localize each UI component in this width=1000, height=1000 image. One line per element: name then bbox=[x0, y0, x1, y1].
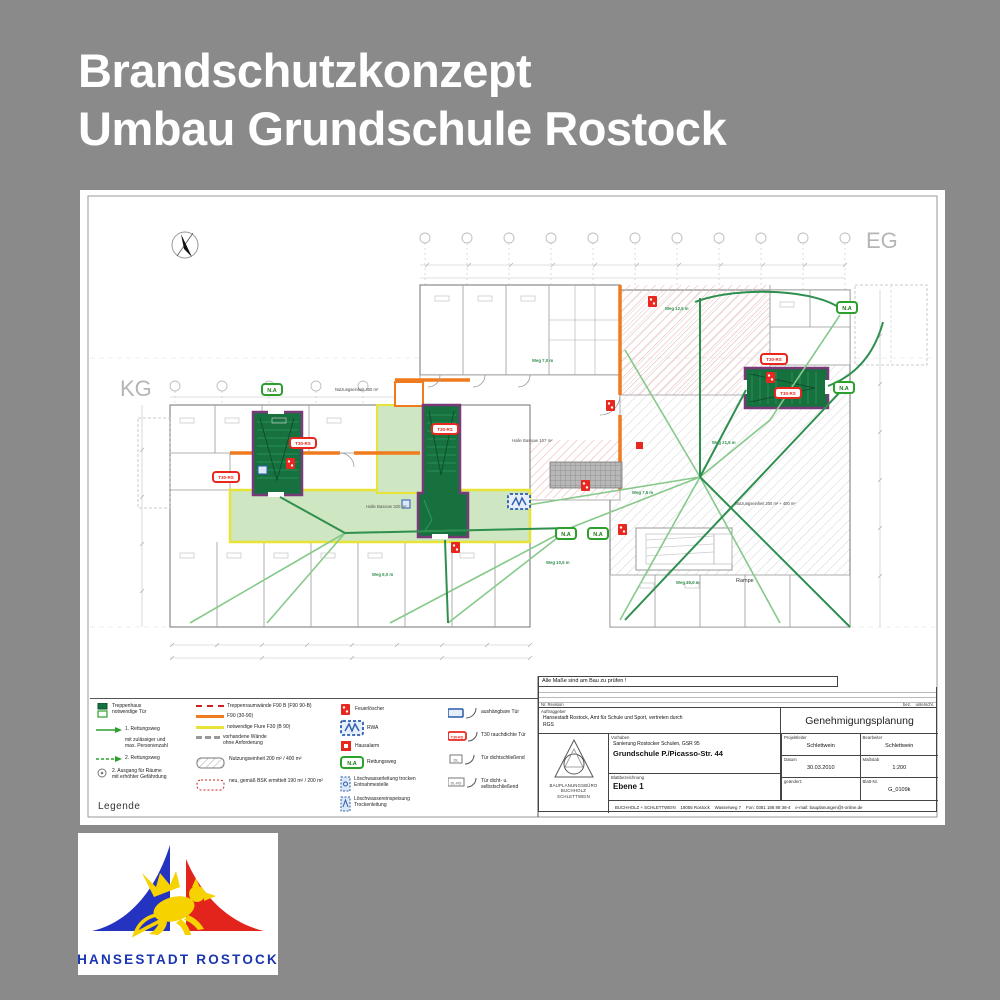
page-title: Brandschutzkonzept Umbau Grundschule Ros… bbox=[78, 42, 726, 158]
hansestadt-rostock-logo: HANSESTADT ROSTOCK bbox=[78, 833, 278, 975]
legend-label: mit zulässiger und bbox=[125, 737, 165, 743]
tight-door-icon: DL bbox=[448, 751, 478, 766]
fire-extinguisher-icon bbox=[340, 703, 352, 716]
bearbeiter-cell: BearbeiterSchlettwein bbox=[860, 734, 939, 756]
route2-arrow-icon bbox=[96, 755, 122, 763]
legend-label: neu, gemäß BSK ermittelt 190 m² / 200 m² bbox=[229, 778, 323, 784]
t30-badge-label: T30-RS bbox=[218, 475, 234, 480]
route-label: Weg 9,0 m bbox=[372, 572, 393, 577]
legend-label: aushängbare Tür bbox=[481, 709, 519, 715]
dry-riser-feed-icon bbox=[340, 796, 351, 812]
legend-label: Treppenhaus bbox=[112, 703, 141, 709]
page-title-line1: Brandschutzkonzept bbox=[78, 42, 726, 100]
wall-existing-swatch bbox=[196, 736, 220, 739]
t30-door-label: T30-RS bbox=[451, 735, 464, 739]
pl-label: Projektleiter bbox=[782, 734, 860, 740]
self-closing-door-icon: DL-RS bbox=[448, 774, 478, 789]
legend-label: Hausalarm bbox=[355, 743, 379, 749]
route-label: Weg 30,0 m bbox=[676, 580, 700, 585]
sheet-name: Ebene 1 bbox=[609, 780, 780, 791]
route-label: Weg 10,5 m bbox=[546, 560, 570, 565]
page-title-line2: Umbau Grundschule Rostock bbox=[78, 100, 726, 158]
meta-grid: ProjektleiterSchlettwein BearbeiterSchle… bbox=[781, 734, 938, 800]
legend-label: Feuerlöscher bbox=[355, 706, 384, 712]
removable-door-icon bbox=[448, 705, 478, 720]
project-line2: Grundschule P./Picasso-Str. 44 bbox=[609, 747, 780, 758]
legend-label: Nutzungseinheit 200 m² / 400 m² bbox=[229, 756, 302, 762]
wall-f90b-swatch bbox=[196, 705, 224, 707]
geaendert-label: geändert: bbox=[782, 778, 860, 784]
sheet-name-cell: Blattbezeichnung Ebene 1 bbox=[609, 774, 780, 800]
geaendert-cell: geändert: bbox=[781, 778, 860, 800]
client-line2: RGS bbox=[543, 722, 554, 728]
blattnr-label: Blatt-Nr. bbox=[861, 778, 939, 784]
bearbeiter-label: Bearbeiter bbox=[861, 734, 939, 740]
ramp bbox=[636, 528, 732, 570]
legend-col-doors: aushängbare Tür T30-RS T30 rauchdichte T… bbox=[448, 699, 538, 791]
logo-caption: HANSESTADT ROSTOCK bbox=[78, 952, 278, 967]
ramp-label: Rampe bbox=[736, 578, 754, 584]
architect-logo-icon bbox=[552, 737, 596, 781]
pl-value: Schlettwein bbox=[782, 743, 860, 749]
route-label: Weg 21,5 m bbox=[712, 440, 736, 445]
title-block: Alle Maße sind am Bau zu prüfen ! Nr. Re… bbox=[538, 676, 937, 812]
exit-room-icon bbox=[96, 768, 109, 778]
legend-label: RWA bbox=[367, 725, 378, 731]
north-arrow-icon bbox=[172, 232, 198, 258]
legend-label: notwendige Tür bbox=[112, 709, 146, 715]
wall-flur-swatch bbox=[196, 726, 224, 729]
contact-line: BUCHHOLZ + SCHLETTWEIN 18055 Rostock Was… bbox=[609, 800, 938, 813]
legend-label: 1. Rettungsweg bbox=[125, 726, 160, 732]
measure-note: Alle Maße sind am Bau zu prüfen ! bbox=[538, 676, 838, 687]
title-block-main: Auftraggeber Hansestadt Rostock, Amt für… bbox=[538, 707, 937, 812]
datum-label: Datum bbox=[782, 756, 860, 762]
usage-unit-label-1: Nutzungseinheit 200 m² + 400 m² bbox=[735, 501, 796, 506]
t30-badge-label: T30-RS bbox=[766, 357, 782, 362]
route-label: Weg 12,5 m bbox=[665, 306, 689, 311]
t30-badge-label: T30-RS bbox=[780, 391, 796, 396]
legend-col-equipment: Feuerlöscher RWA Hausalarm N.A Rettungsw… bbox=[340, 699, 445, 812]
firm-line: BUCHHOLZ bbox=[561, 788, 586, 793]
legend-label: Tür dicht- u. selbstschließend bbox=[481, 778, 538, 791]
rwa-icon bbox=[340, 720, 364, 736]
blattnr-cell: Blatt-Nr.G_0109k bbox=[860, 778, 939, 800]
architect-logo-cell: BAUPLANUNGSBÜRO BUCHHOLZ SCHLETTWEIN bbox=[539, 734, 609, 813]
legend-heading: Legende bbox=[98, 801, 140, 812]
legend-label: Treppenraumwände F90 B (F90 90-B) bbox=[227, 703, 312, 709]
floor-label-eg: EG bbox=[866, 228, 898, 253]
blattnr-value: G_0109k bbox=[861, 787, 939, 793]
house-alarm-icon bbox=[636, 442, 643, 449]
route-label: Weg 7,0 m bbox=[532, 358, 553, 363]
legend-label: 2. Rettungsweg bbox=[125, 755, 160, 761]
legend-label: 2. Ausgang für Räume bbox=[112, 768, 162, 774]
dl-door-label: DL bbox=[453, 757, 459, 762]
na-badge-label: N.A bbox=[267, 388, 277, 394]
na-badge-label: N.A bbox=[842, 306, 852, 312]
legend-label: Tür dichtschließend bbox=[481, 755, 525, 761]
client-line1: Hansestadt Rostock, Amt für Schule und S… bbox=[543, 715, 683, 721]
rwa-icon bbox=[508, 494, 530, 509]
t30-door-icon: T30-RS bbox=[448, 728, 478, 743]
datum-value: 30.03.2010 bbox=[782, 765, 860, 771]
t30-badge-label: T30-RS bbox=[295, 441, 311, 446]
legend-label: ohne Anforderung bbox=[223, 740, 263, 746]
legend-label: Löschwasserleitung trocken bbox=[354, 776, 416, 782]
escape-badge-icon: N.A bbox=[340, 756, 364, 769]
firm-line: BAUPLANUNGSBÜRO bbox=[550, 783, 598, 788]
massstab-label: Maßstab bbox=[861, 756, 939, 762]
legend: Treppenhaus notwendige Tür 1. Rettungswe… bbox=[90, 698, 538, 818]
na-badge-label: N.A bbox=[561, 532, 571, 538]
legend-col-escape: Treppenhaus notwendige Tür 1. Rettungswe… bbox=[96, 699, 194, 780]
stairwell-a bbox=[253, 409, 302, 497]
legend-label: Entnahmestelle bbox=[354, 782, 388, 788]
floor-label-kg: KG bbox=[120, 376, 152, 401]
massstab-value: 1:200 bbox=[861, 765, 939, 771]
pl-cell: ProjektleiterSchlettwein bbox=[781, 734, 860, 756]
usage-unit-new-icon bbox=[196, 778, 226, 792]
dlrs-door-label: DL-RS bbox=[451, 781, 462, 785]
na-badge-label: N.A bbox=[593, 532, 603, 538]
project-cells: Vorhaben Sanierung Rostocker Schulen, GS… bbox=[609, 734, 781, 800]
massstab-cell: Maßstab1:200 bbox=[860, 756, 939, 778]
legend-label: F90 (30-90) bbox=[227, 713, 253, 719]
legend-label: Löschwassereinspeisung bbox=[354, 796, 410, 802]
legend-label: mit erhöhter Gefährdung bbox=[112, 774, 166, 780]
hall-big-label: Halle Bassow 320 m² bbox=[366, 504, 407, 509]
hansestadt-rostock-logo-icon: HANSESTADT ROSTOCK bbox=[78, 833, 278, 975]
revision-table: Nr. Revision bez. unterschr. bbox=[538, 687, 937, 707]
client-cell: Auftraggeber Hansestadt Rostock, Amt für… bbox=[539, 708, 781, 734]
legend-label: vorhandene Wände bbox=[223, 734, 267, 740]
wall-f90-swatch bbox=[196, 715, 224, 718]
dry-riser-outlet-icon bbox=[340, 776, 351, 792]
legend-label: Trockenleitung bbox=[354, 802, 387, 808]
project-cell: Vorhaben Sanierung Rostocker Schulen, GS… bbox=[609, 734, 780, 774]
house-alarm-icon bbox=[340, 740, 352, 752]
plan-sheet: N.A N.A N.A N.A N.A T30-RS T30-RS T30-RS… bbox=[80, 190, 945, 825]
route-label: Weg 7,5 m bbox=[632, 490, 653, 495]
escape-badge-label: N.A bbox=[347, 761, 357, 767]
usage-unit-icon bbox=[196, 756, 226, 770]
firm-line: SCHLETTWEIN bbox=[557, 794, 590, 799]
stairwell-icon bbox=[96, 703, 109, 718]
phase-cell: Genehmigungsplanung bbox=[781, 708, 938, 734]
route1-arrow-icon bbox=[96, 726, 122, 734]
project-line1: Sanierung Rostocker Schulen, GSR 95 bbox=[609, 740, 780, 747]
legend-label: Rettungsweg bbox=[367, 759, 396, 765]
legend-col-walls: Treppenraumwände F90 B (F90 90-B) F90 (3… bbox=[196, 699, 336, 792]
legend-label: max. Personenzahl bbox=[125, 743, 168, 749]
bearbeiter-value: Schlettwein bbox=[861, 743, 939, 749]
page: { "page": { "background": "#8a8a8a", "ti… bbox=[0, 0, 1000, 1000]
t30-badge-label: T30-RS bbox=[437, 427, 453, 432]
legend-label: T30 rauchdichte Tür bbox=[481, 732, 526, 738]
legend-label: notwendige Flure F30 (B 90) bbox=[227, 724, 290, 730]
datum-cell: Datum30.03.2010 bbox=[781, 756, 860, 778]
na-badge-label: N.A bbox=[839, 386, 849, 392]
hall-small-label: Halle Bassow 107 m² bbox=[512, 438, 553, 443]
usage-unit-label-2: Nutzungseinheit 400 m² bbox=[335, 387, 379, 392]
